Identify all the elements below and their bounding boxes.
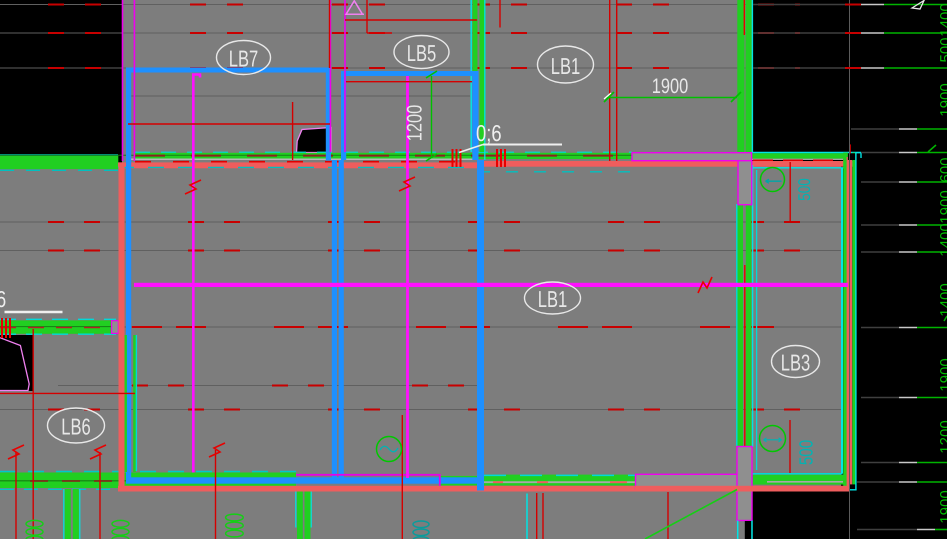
svg-text:1900: 1900	[938, 83, 947, 116]
svg-text:1400: 1400	[938, 283, 947, 316]
svg-text:LB5: LB5	[407, 40, 436, 66]
svg-text:500: 500	[795, 178, 814, 201]
svg-text:1400: 1400	[938, 3, 947, 36]
svg-text:LB6: LB6	[61, 414, 90, 440]
svg-text:LB7: LB7	[229, 46, 258, 72]
svg-text:1200: 1200	[404, 105, 427, 141]
svg-text:1200: 1200	[938, 420, 947, 453]
svg-text:1400: 1400	[938, 223, 947, 256]
svg-text:600: 600	[938, 157, 947, 182]
svg-text:1900: 1900	[938, 190, 947, 223]
svg-text:1900: 1900	[938, 358, 947, 391]
svg-text:LB3: LB3	[781, 350, 810, 376]
svg-text:500: 500	[797, 440, 818, 465]
svg-text:1900: 1900	[938, 490, 947, 523]
svg-text:LB1: LB1	[551, 53, 580, 79]
svg-text:1900: 1900	[652, 75, 688, 98]
svg-text:LB1: LB1	[538, 286, 567, 312]
svg-text:6: 6	[0, 286, 6, 312]
svg-text:500: 500	[938, 37, 947, 62]
svg-text:0;6: 0;6	[476, 120, 502, 146]
